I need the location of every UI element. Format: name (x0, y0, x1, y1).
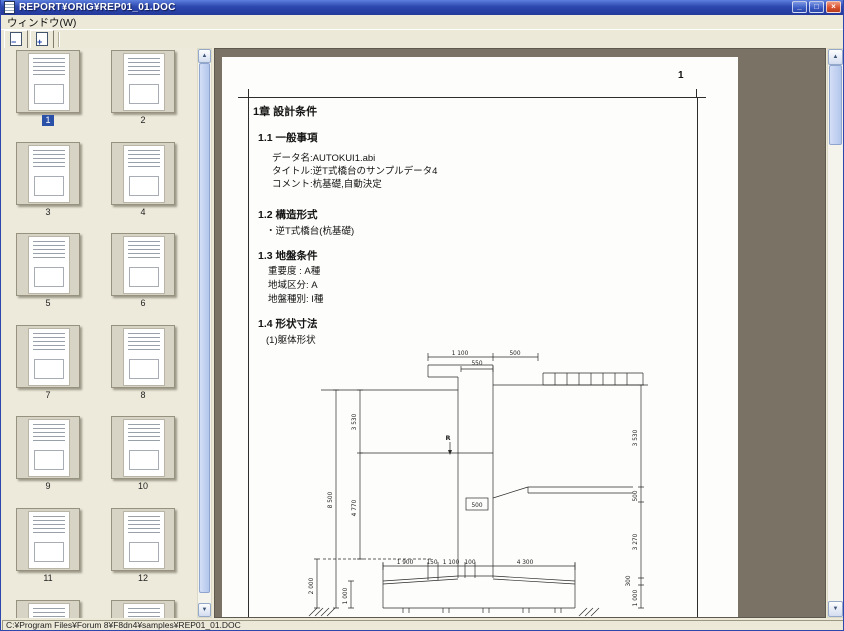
page-number-label[interactable]: 12 (111, 573, 175, 584)
dimension-label: 1 900 (397, 560, 414, 566)
menu-bar: ウィンドウ(W) (1, 15, 844, 30)
enlarge-page-button[interactable]: + (30, 30, 54, 49)
dimension-label: 300 (626, 575, 632, 586)
dimension-label: 150 (426, 560, 437, 566)
page-thumbnail[interactable] (16, 600, 80, 618)
page-number-label[interactable]: 5 (16, 298, 80, 309)
page-number-label[interactable]: 3 (16, 207, 80, 218)
page-number-label[interactable]: 6 (111, 298, 175, 309)
abutment-cross-section-drawing: 1 100 500 550 3 530 4 770 8 500 2 000 1 … (303, 350, 743, 618)
document-page: 1 1章 設計条件 1.1 一般事項 データ名:AUTOKUI1.abi タイト… (222, 57, 738, 618)
thumbnail-page-preview (28, 236, 70, 294)
section-heading: 1.2 構造形式 (258, 207, 318, 222)
page-thumbnail[interactable] (111, 233, 175, 296)
page-number-label[interactable]: 9 (16, 481, 80, 492)
page-thumbnail[interactable] (111, 600, 175, 618)
dimension-label: 500 (509, 351, 520, 357)
window-titlebar: REPORT¥ORIG¥REP01_01.DOC _ □ × (1, 0, 844, 15)
thumbnail-page-preview (123, 511, 165, 569)
frame-tick (696, 89, 697, 97)
window-title: REPORT¥ORIG¥REP01_01.DOC (19, 2, 176, 13)
scrollbar-thumb[interactable] (199, 63, 210, 593)
scroll-up-button[interactable]: ▲ (198, 49, 211, 63)
thumbnail-page-preview (123, 53, 165, 111)
point-label-r: R (445, 434, 450, 442)
section-line: ・逆T式橋台(杭基礎) (266, 223, 354, 237)
page-number-label[interactable]: 8 (111, 390, 175, 401)
page-number-label[interactable]: 10 (111, 481, 175, 492)
section-line: データ名:AUTOKUI1.abi (272, 150, 375, 164)
dimension-label: 1 000 (343, 587, 349, 604)
scrollbar-thumb[interactable] (829, 65, 842, 145)
scroll-down-button[interactable]: ▼ (198, 603, 211, 617)
status-path: C:¥Program Files¥Forum 8¥F8dn4¥samples¥R… (2, 620, 844, 631)
frame-tick (248, 89, 249, 97)
dimension-label: 500 (471, 503, 482, 509)
document-viewport: 1 1章 設計条件 1.1 一般事項 データ名:AUTOKUI1.abi タイト… (214, 48, 826, 618)
dimension-label: 3 530 (633, 429, 639, 446)
scroll-up-button[interactable]: ▲ (828, 49, 843, 65)
restore-button[interactable]: □ (809, 1, 824, 13)
dimension-label: 3 270 (633, 533, 639, 550)
thumbnail-page-preview (28, 53, 70, 111)
menu-item-window[interactable]: ウィンドウ(W) (1, 15, 82, 30)
section-line: 重要度 : A種 (268, 263, 320, 277)
thumbnail-page-preview (123, 419, 165, 477)
thumbnail-page-preview (28, 145, 70, 203)
page-thumbnail[interactable] (111, 142, 175, 205)
close-button[interactable]: × (826, 1, 841, 13)
page-thumbnail[interactable] (111, 50, 175, 113)
dimension-label: 550 (471, 361, 482, 367)
thumbnail-page-preview (123, 236, 165, 294)
page-thumbnail[interactable] (16, 416, 80, 479)
page-thumbnail[interactable] (16, 233, 80, 296)
application-window: REPORT¥ORIG¥REP01_01.DOC _ □ × ウィンドウ(W) … (0, 0, 844, 631)
frame-tick (696, 97, 706, 98)
thumbnail-page-preview (28, 511, 70, 569)
dimension-label: 100 (464, 560, 475, 566)
section-heading: 1.3 地盤条件 (258, 248, 318, 263)
dimension-label: 3 530 (352, 413, 358, 430)
section-line: 地盤種別: I種 (268, 291, 323, 305)
page-thumbnail[interactable] (16, 50, 80, 113)
page-thumbnail[interactable] (16, 508, 80, 571)
thumbnail-page-preview (28, 603, 70, 618)
document-icon (4, 1, 15, 14)
section-heading: 1.4 形状寸法 (258, 316, 318, 331)
toolbar: − + (1, 29, 844, 48)
thumbnail-page-preview (28, 419, 70, 477)
thumbnail-panel: 1 2 3 4 5 6 7 8 9 10 11 12 (3, 48, 197, 618)
toolbar-separator (58, 32, 60, 47)
page-thumbnail[interactable] (111, 508, 175, 571)
section-heading: 1.1 一般事項 (258, 130, 318, 145)
dimension-label: 1 100 (452, 351, 469, 357)
section-line: (1)躯体形状 (266, 332, 316, 346)
dimension-label: 500 (633, 490, 639, 501)
dimension-label: 1 000 (633, 589, 639, 606)
dimension-label: 8 500 (328, 491, 334, 508)
status-bar: C:¥Program Files¥Forum 8¥F8dn4¥samples¥R… (1, 620, 844, 631)
section-line: コメント:杭基礎,自動決定 (272, 176, 382, 190)
scroll-down-button[interactable]: ▼ (828, 601, 843, 617)
page-thumbnail[interactable] (16, 325, 80, 388)
page-number-label[interactable]: 4 (111, 207, 175, 218)
thumbnail-page-preview (123, 145, 165, 203)
page-zoom-in-icon: + (36, 32, 48, 46)
dimension-label: 4 770 (352, 499, 358, 516)
thumbnail-page-preview (123, 603, 165, 618)
thumbnail-page-preview (28, 328, 70, 386)
main-scrollbar[interactable]: ▲ ▼ (827, 48, 844, 618)
shrink-page-button[interactable]: − (4, 30, 28, 49)
page-thumbnail[interactable] (16, 142, 80, 205)
page-number-label[interactable]: 11 (16, 573, 80, 584)
thumbnail-page-preview (123, 328, 165, 386)
section-line: 地域区分: A (268, 277, 318, 291)
sidebar-scrollbar[interactable]: ▲ ▼ (197, 48, 212, 618)
section-line: タイトル:逆T式橋台のサンプルデータ4 (272, 163, 437, 177)
page-number: 1 (678, 70, 684, 81)
page-number-label[interactable]: 2 (111, 115, 175, 126)
page-number-label[interactable]: 1 (16, 115, 80, 126)
page-thumbnail[interactable] (111, 325, 175, 388)
page-zoom-out-icon: − (10, 32, 22, 46)
chapter-heading: 1章 設計条件 (253, 103, 317, 119)
minimize-button[interactable]: _ (792, 1, 807, 13)
dimension-label: 2 000 (309, 577, 315, 594)
dimension-label: 4 300 (517, 560, 534, 566)
frame-tick (238, 97, 248, 98)
page-thumbnail[interactable] (111, 416, 175, 479)
dimension-label: 1 100 (443, 560, 460, 566)
page-number-label[interactable]: 7 (16, 390, 80, 401)
